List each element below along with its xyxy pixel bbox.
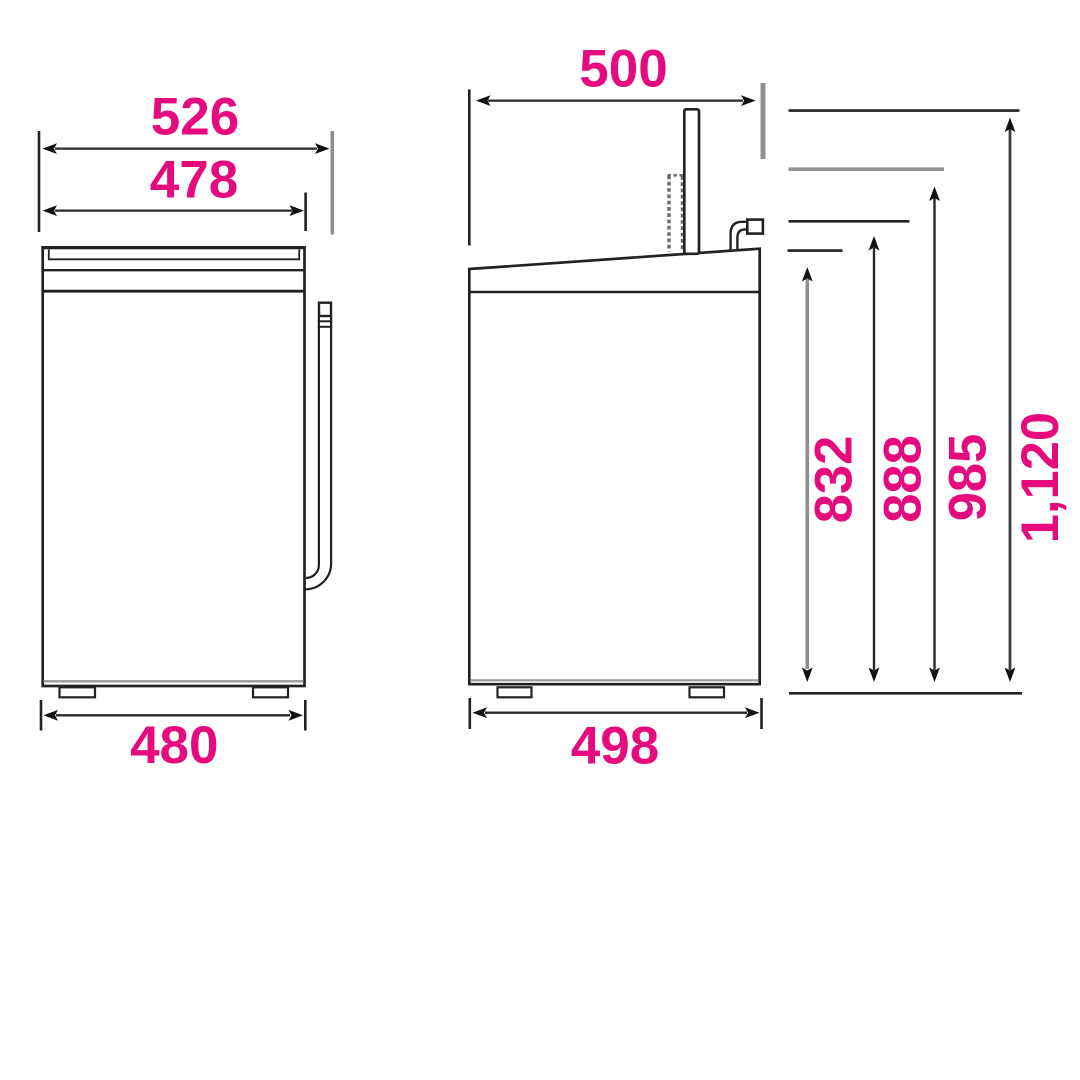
svg-text:478: 478 <box>150 151 238 210</box>
svg-text:1,120: 1,120 <box>1011 412 1070 543</box>
svg-text:498: 498 <box>571 716 659 775</box>
svg-text:500: 500 <box>579 39 667 98</box>
svg-text:832: 832 <box>805 436 864 524</box>
svg-text:480: 480 <box>130 716 218 775</box>
svg-text:888: 888 <box>874 435 933 523</box>
svg-text:526: 526 <box>151 88 239 147</box>
svg-text:985: 985 <box>939 434 998 522</box>
